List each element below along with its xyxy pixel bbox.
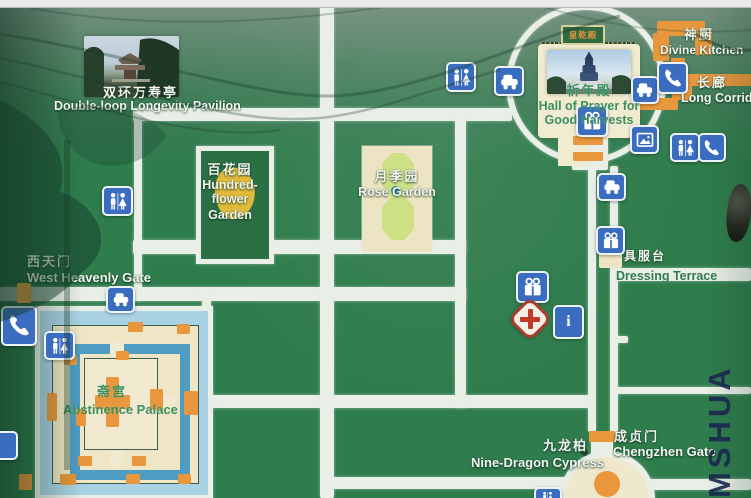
garden-label-zh: 百花园: [207, 163, 252, 178]
road-bottom-horizontal-west: [333, 477, 565, 489]
gate-marker: [128, 322, 143, 332]
photo-artifact: [724, 183, 751, 243]
gate-marker: [126, 474, 140, 484]
imperial-vault-marker: [594, 471, 620, 497]
palace-label-en: Abstinence Palace: [63, 403, 178, 418]
long-corridor-label-en: Long Corridor: [681, 91, 751, 105]
abstinence-palace: 斋宫 Abstinence Palace: [35, 306, 213, 498]
restroom-icon: [44, 331, 75, 360]
sightseeing-car-icon: [597, 173, 626, 201]
pavilion-label-en: Double-loop Longevity Pavilion: [54, 99, 241, 113]
chengzhen-gate-marker: [589, 431, 615, 442]
garden-label-en: flower: [212, 192, 249, 206]
cypress-label-zh: 九龙柏: [543, 439, 588, 454]
gate-marker: [60, 474, 76, 485]
hall-label-zh: 祈年殿: [566, 84, 611, 99]
sign-top-edge: [0, 0, 751, 8]
gift-shop-icon: [516, 271, 549, 303]
garden-label-zh: 月季园: [374, 170, 419, 185]
photo-spot-icon: [630, 125, 659, 154]
divine-kitchen-label-en: Divine Kitchen: [660, 44, 743, 57]
information-icon: i: [553, 305, 584, 339]
hall-label-en: Hall of Prayer for: [539, 99, 640, 113]
rose-bed: [382, 196, 414, 240]
restroom-icon: [670, 133, 700, 162]
west-gate-label-en: West Heavenly Gate: [27, 271, 151, 286]
road-danbi-west-edge: [588, 166, 596, 432]
gate-marker: [178, 474, 191, 484]
moat-bridge: [110, 451, 124, 467]
gate-marker: [78, 456, 92, 466]
north-hall-sign-label: 皇乾殿: [569, 29, 598, 41]
sightseeing-car-icon: [106, 286, 135, 313]
divine-kitchen-label-zh: 神厨: [684, 28, 714, 43]
chengzhen-label-zh: 成贞门: [614, 430, 659, 445]
map-symbol-icon: [0, 431, 18, 460]
gate-marker: [116, 351, 129, 360]
gift-shop-icon: [596, 226, 625, 255]
gate-marker: [177, 324, 190, 334]
chengzhen-label-en: Chengzhen Gate: [613, 445, 716, 460]
hall-label-en: Good Harvests: [545, 113, 634, 127]
gate-marker: [573, 152, 603, 161]
garden-label-en: Hundred-: [202, 178, 258, 192]
telephone-icon: [1, 306, 37, 346]
gate-marker: [132, 456, 146, 466]
sightseeing-car-icon: [494, 66, 524, 96]
hundred-flower-garden-label: 百花园 Hundred- flower Garden: [196, 163, 264, 222]
garden-label-en: Garden: [208, 208, 252, 222]
restroom-icon: [102, 186, 133, 216]
north-hall-sign: 皇乾殿: [561, 25, 605, 45]
dressing-terrace-label-en: Dressing Terrace: [616, 269, 717, 283]
rose-garden-box: [362, 146, 432, 252]
map-symbol-icon: [534, 487, 562, 498]
road-vertical-3: [455, 112, 466, 408]
gate-marker: [19, 474, 32, 490]
hall-of-prayer-label: 祈年殿 Hall of Prayer for Good Harvests: [538, 84, 640, 127]
watermark-text: MSHUA: [702, 356, 738, 498]
road-lower-horizontal: [196, 395, 592, 408]
gate-marker: [47, 393, 57, 421]
garden-label-en: Rose Garden: [358, 185, 436, 199]
telephone-icon: [657, 62, 688, 94]
palace-label-zh: 斋宫: [97, 385, 127, 400]
rose-garden-label: 月季园 Rose Garden: [352, 170, 442, 199]
road-vertical-2: [320, 6, 334, 498]
telephone-icon: [698, 133, 726, 162]
road-west-gate-horizontal: [0, 287, 466, 301]
west-heavenly-gate-marker: [17, 283, 31, 303]
park-map-sign-photo: 皇乾殿 百花园 Hundred- flower Garden: [0, 0, 751, 498]
dressing-terrace-label-zh: 具服台: [624, 250, 666, 263]
road-danbi-east-edge: [610, 166, 618, 432]
restroom-icon: [446, 62, 476, 92]
information-glyph: i: [566, 313, 570, 331]
gate-marker: [573, 136, 603, 145]
first-aid-icon: [507, 296, 552, 341]
west-gate-label-zh: 西天门: [27, 255, 72, 270]
gate-marker: [184, 391, 198, 415]
long-corridor-label-zh: 长廊: [697, 76, 727, 91]
cypress-label-en: Nine-Dragon Cypress: [471, 456, 604, 471]
